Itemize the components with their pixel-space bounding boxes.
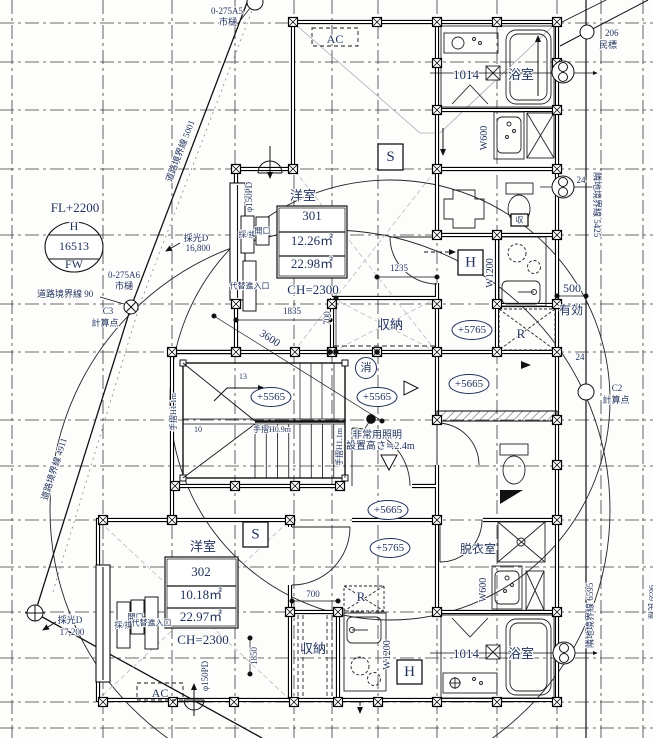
column-marker	[493, 348, 502, 357]
svg-text:収納: 収納	[300, 641, 326, 656]
label-benchmark-206-no: 206	[605, 28, 619, 38]
label-symbol-h-bottom: H	[397, 660, 422, 684]
svg-text:浴室: 浴室	[508, 67, 534, 82]
label-pd-bottom-label: φ150PD	[200, 660, 210, 691]
survey-markers	[25, 0, 597, 664]
column-marker	[493, 698, 502, 707]
svg-text:道路境界線 4911: 道路境界線 4911	[38, 436, 69, 501]
label-room302-name: 洋室	[190, 539, 216, 554]
svg-text:H: H	[465, 255, 476, 271]
column-marker	[232, 300, 241, 309]
column-marker	[433, 231, 442, 240]
label-opening-top-2: 開口	[255, 217, 271, 245]
label-marker-0275a5-name: 市樋	[219, 16, 237, 27]
svg-text:301: 301	[302, 208, 322, 223]
label-benchmark-206-name: 民標	[599, 39, 617, 50]
column-marker	[168, 348, 177, 357]
svg-text:+5765: +5765	[458, 324, 487, 336]
svg-text:洋室: 洋室	[190, 539, 216, 554]
column-marker	[291, 348, 300, 357]
svg-text:代替進入口: 代替進入口	[132, 618, 172, 628]
column-marker	[433, 18, 442, 27]
svg-text:12.26㎡: 12.26㎡	[291, 233, 333, 248]
label-daylight-d2: 採光D	[58, 614, 83, 625]
svg-text:浴室: 浴室	[508, 646, 534, 661]
label-dim-1235: 1235	[390, 263, 409, 273]
drain-marker-3	[553, 642, 575, 664]
svg-text:13: 13	[239, 372, 247, 381]
column-marker	[99, 698, 108, 707]
svg-text:9659 民標: 9659 民標	[647, 585, 653, 619]
label-symbol-s-top: S	[378, 144, 403, 170]
svg-text:17,200: 17,200	[60, 627, 85, 637]
svg-text:22.98㎡: 22.98㎡	[291, 256, 333, 271]
label-marker-0275a5-no: 0-275A5	[211, 6, 243, 16]
column-marker	[433, 165, 442, 174]
svg-text:計算点: 計算点	[602, 394, 629, 405]
label-marker-0275a6-name: 市樋	[115, 280, 133, 291]
column-marker	[231, 482, 240, 491]
svg-text:CH=2300: CH=2300	[287, 282, 338, 297]
label-daylight-d1: 採光D	[184, 232, 209, 243]
label-stair-count-10: 10	[194, 425, 202, 434]
svg-text:10.18㎡: 10.18㎡	[180, 587, 222, 602]
column-marker	[291, 482, 300, 491]
label-dressing-room-label: 脱衣室	[460, 541, 496, 556]
label-benchmark-fl: FL+2200	[51, 200, 100, 215]
svg-text:S: S	[251, 527, 259, 543]
floor-plan-canvas: 0-275A5市樋AC206民標1014浴室W60024隣地境界線 5425S洋…	[0, 0, 653, 738]
column-marker	[433, 106, 442, 115]
label-dim-500-note: 有効	[559, 302, 583, 317]
label-handrail-1: 手摺H1.1m	[168, 392, 178, 431]
column-marker	[553, 516, 562, 525]
drain-marker-2	[552, 176, 574, 198]
svg-text:FL+2200: FL+2200	[51, 200, 100, 215]
svg-text:φ150PD: φ150PD	[244, 181, 254, 212]
daylight-leader-2	[43, 622, 56, 630]
column-marker	[232, 165, 241, 174]
column-marker	[232, 348, 241, 357]
label-calcpoint-c3-name: 計算点	[91, 317, 118, 328]
label-benchmark-value: 16513	[59, 239, 89, 253]
svg-text:W600: W600	[478, 578, 489, 602]
column-marker	[286, 608, 295, 617]
svg-text:非常用照明: 非常用照明	[352, 428, 402, 441]
boundary-corner-2	[562, 0, 606, 22]
svg-text:302: 302	[191, 564, 211, 579]
vent-triangle-down	[381, 455, 397, 470]
label-bath-bottom-unit: 1014	[453, 646, 480, 661]
label-bath-top-name: 浴室	[508, 67, 534, 82]
column-marker	[289, 18, 298, 27]
closet-bottom-rails	[298, 615, 332, 697]
solid-triangle-corner	[500, 490, 523, 504]
column-marker	[553, 231, 562, 240]
label-ac-bottom-label: AC	[152, 686, 169, 700]
label-kitchen-bottom-label: W1200	[382, 640, 393, 669]
label-room301-ceiling: CH=2300	[287, 282, 338, 297]
vanity-top	[494, 112, 524, 159]
label-daylight-d1-value: 16,800	[186, 243, 211, 253]
svg-text:CH=2300: CH=2300	[177, 632, 228, 647]
label-room302-area2: 22.97㎡	[180, 609, 222, 624]
svg-text:0-275A5: 0-275A5	[211, 6, 243, 16]
label-handrail-2: 手摺H0.9m	[253, 424, 292, 434]
column-marker	[171, 482, 180, 491]
label-dim-24-top: 24	[577, 175, 587, 185]
label-daylight-d2-value: 17,200	[60, 627, 85, 637]
column-marker	[289, 165, 298, 174]
svg-text:1835: 1835	[283, 306, 302, 316]
svg-text:22.97㎡: 22.97㎡	[180, 609, 222, 624]
column-marker	[374, 698, 383, 707]
svg-text:C2: C2	[612, 383, 623, 393]
column-marker	[553, 106, 562, 115]
benchmark-206-circle	[580, 25, 594, 39]
label-level-5765-b: +5765	[370, 539, 410, 558]
svg-text:+5665: +5665	[374, 504, 403, 516]
label-fridge-top-label: R	[517, 326, 526, 341]
svg-text:道路境界線 90: 道路境界線 90	[37, 288, 94, 299]
label-room301-number: 301	[302, 208, 322, 223]
svg-text:採光D: 採光D	[58, 614, 83, 625]
label-storage-top-label: 収納	[377, 317, 403, 332]
label-benchmark-fw: FW	[65, 257, 84, 271]
column-marker	[433, 348, 442, 357]
washer-space-top	[527, 113, 554, 158]
svg-text:24: 24	[577, 175, 587, 185]
svg-text:隣地境界線 5425: 隣地境界線 5425	[592, 172, 603, 238]
label-bath-top-unit: 1014	[453, 67, 480, 82]
column-marker	[553, 608, 562, 617]
svg-text:16,800: 16,800	[186, 243, 211, 253]
label-dim-500: 500	[563, 281, 581, 295]
label-boundary-road-5001: 道路境界線 5001	[163, 118, 197, 183]
svg-text:収: 収	[516, 215, 524, 225]
window-room302	[96, 565, 110, 682]
label-dim-3600: 3600	[257, 327, 282, 349]
svg-text:W600: W600	[479, 126, 490, 150]
svg-text:採光D: 採光D	[184, 232, 209, 243]
svg-text:R: R	[517, 326, 526, 341]
column-marker	[493, 300, 502, 309]
label-dim-24-mid: 24	[576, 352, 586, 362]
svg-text:φ150PD: φ150PD	[200, 660, 210, 691]
svg-text:洋室: 洋室	[290, 188, 316, 203]
column-marker	[553, 416, 562, 425]
label-stair-count-13: 13	[239, 372, 247, 381]
svg-text:W1200: W1200	[382, 640, 393, 669]
svg-text:700: 700	[306, 589, 320, 599]
label-boundary-road-90: 道路境界線 90	[37, 288, 94, 299]
label-calcpoint-c2: C2	[612, 383, 623, 393]
survey-cross-marker	[25, 605, 45, 621]
svg-text:W1200: W1200	[485, 258, 496, 287]
svg-text:1014: 1014	[453, 646, 480, 661]
svg-text:C3: C3	[103, 306, 114, 316]
door-room302	[292, 527, 350, 585]
label-emergency-light-2: 設置高さ≒2.4m	[346, 439, 415, 452]
svg-text:設置高さ≒2.4m: 設置高さ≒2.4m	[346, 439, 415, 452]
svg-text:+5665: +5665	[455, 378, 484, 390]
svg-text:24: 24	[576, 352, 586, 362]
svg-text:16513: 16513	[59, 239, 89, 253]
svg-text:700: 700	[322, 311, 332, 325]
svg-text:有効: 有効	[559, 302, 583, 317]
svg-text:民標: 民標	[599, 39, 617, 50]
svg-text:206: 206	[605, 28, 619, 38]
label-dim-700-top: 700	[322, 311, 332, 325]
column-marker	[433, 608, 442, 617]
svg-text:隣地境界線 6595: 隣地境界線 6595	[584, 582, 595, 648]
label-symbol-h-right: H	[458, 250, 483, 275]
staircase	[180, 360, 348, 481]
column-marker	[99, 516, 108, 525]
column-marker	[290, 698, 299, 707]
label-fridge-bottom-label: R	[357, 589, 366, 604]
calcpoint-c2-circle	[578, 384, 594, 400]
svg-text:手摺H1.1m: 手摺H1.1m	[168, 392, 178, 431]
label-pd-top-label: φ150PD	[244, 181, 254, 212]
label-level-5565-b: +5565	[357, 388, 397, 407]
label-opening-bottom-1: 採/換	[114, 602, 132, 648]
stove-burner-icon	[351, 657, 369, 675]
column-marker	[373, 18, 382, 27]
label-dim-1850: 1850	[249, 647, 259, 666]
column-marker	[433, 698, 442, 707]
label-boundary-road-4911: 道路境界線 4911	[38, 436, 69, 501]
svg-text:+5565: +5565	[257, 391, 286, 403]
svg-text:手摺H0.9m: 手摺H0.9m	[253, 424, 292, 434]
label-ac-top-label: AC	[327, 32, 344, 46]
label-benchmark-9659: 9659 民標	[647, 585, 653, 619]
label-room302-area1: 10.18㎡	[180, 587, 222, 602]
label-dim-700-bottom: 700	[306, 589, 320, 599]
label-kitchen-top-label: W1200	[485, 258, 496, 287]
column-marker	[433, 300, 442, 309]
label-calcpoint-c2-name: 計算点	[602, 394, 629, 405]
vanity-bottom	[492, 566, 522, 609]
column-marker	[169, 698, 178, 707]
label-boundary-east-2: 隣地境界線 6595	[584, 582, 595, 648]
svg-text:1850: 1850	[249, 647, 259, 666]
door-toilet-mid	[437, 423, 479, 465]
folding-door-icon	[452, 618, 488, 637]
svg-text:FW: FW	[65, 257, 84, 271]
fixtures	[298, 26, 555, 698]
washer-pan-bottom	[498, 522, 545, 562]
column-marker	[433, 416, 442, 425]
svg-text:計算点: 計算点	[91, 317, 118, 328]
column-marker	[493, 18, 502, 27]
svg-text:AC: AC	[327, 32, 344, 46]
label-room302-number: 302	[191, 564, 211, 579]
svg-text:脱衣室: 脱衣室	[460, 541, 496, 556]
label-handrail-3: 手摺H1.1m	[334, 427, 344, 466]
svg-text:0-275A6: 0-275A6	[108, 270, 140, 280]
column-marker	[328, 300, 337, 309]
column-marker	[553, 698, 562, 707]
svg-text:10: 10	[194, 425, 202, 434]
utility-sink-top	[444, 190, 484, 228]
folding-door-icon	[452, 85, 488, 104]
vent-triangle-right	[404, 381, 418, 395]
kitchen-sink-icon	[502, 281, 540, 304]
label-level-5765-a: +5765	[452, 321, 492, 340]
svg-text:+5765: +5765	[376, 542, 405, 554]
svg-text:500: 500	[563, 281, 581, 295]
label-symbol-extinguisher: 消	[356, 358, 377, 379]
column-marker	[334, 698, 343, 707]
hatched-wall	[437, 411, 557, 421]
label-boundary-east-1: 隣地境界線 5425	[592, 172, 603, 238]
kitchen-top	[499, 237, 546, 306]
column-marker	[553, 348, 562, 357]
svg-text:S: S	[386, 149, 394, 165]
svg-text:AC: AC	[152, 686, 169, 700]
kitchen-bottom	[344, 613, 386, 691]
svg-text:代替進入口: 代替進入口	[230, 281, 270, 291]
column-marker	[336, 482, 345, 491]
floor-plan-svg: 0-275A5市樋AC206民標1014浴室W60024隣地境界線 5425S洋…	[0, 0, 653, 738]
daylight-leader-1	[166, 243, 180, 251]
label-bath-bottom-name: 浴室	[508, 646, 534, 661]
column-marker	[168, 516, 177, 525]
label-dim-1835: 1835	[283, 306, 302, 316]
toilet-mid	[500, 444, 528, 484]
svg-text:R: R	[357, 589, 366, 604]
fridge-space-top	[499, 309, 555, 350]
svg-text:H: H	[70, 219, 79, 233]
column-marker	[553, 18, 562, 27]
label-vanity-top-label: W600	[479, 126, 490, 150]
svg-text:開口: 開口	[255, 227, 271, 236]
label-room302-ceiling: CH=2300	[177, 632, 228, 647]
washer-space-bottom	[526, 571, 544, 610]
svg-text:H: H	[404, 664, 415, 680]
svg-text:市樋: 市樋	[219, 16, 237, 27]
column-marker	[334, 608, 343, 617]
label-symbol-s-bottom: S	[243, 522, 268, 547]
label-room301-area2: 22.98㎡	[291, 256, 333, 271]
svg-text:+5565: +5565	[363, 391, 392, 403]
label-room301-area1: 12.26㎡	[291, 233, 333, 248]
column-marker	[553, 165, 562, 174]
label-level-5565-a: +5565	[251, 388, 291, 407]
label-storage-bottom-label: 収納	[300, 641, 326, 656]
label-emergency-light-1: 非常用照明	[352, 428, 402, 441]
column-marker	[553, 461, 562, 470]
svg-text:収納: 収納	[377, 317, 403, 332]
svg-text:3600: 3600	[257, 327, 282, 349]
stove-burner-icon	[508, 244, 526, 262]
column-marker	[433, 59, 442, 68]
label-shelf-top-label: 収	[511, 214, 528, 226]
label-room301-name: 洋室	[290, 188, 316, 203]
column-marker	[433, 516, 442, 525]
label-level-5665-b: +5665	[368, 501, 408, 520]
column-marker	[230, 698, 239, 707]
svg-text:手摺H1.1m: 手摺H1.1m	[334, 427, 344, 466]
label-benchmark-h: H	[70, 219, 79, 233]
column-marker	[286, 516, 295, 525]
label-marker-0275a6-no: 0-275A6	[108, 270, 140, 280]
washbasin-icon	[452, 37, 464, 49]
label-calcpoint-c3: C3	[103, 306, 114, 316]
svg-text:1014: 1014	[453, 67, 480, 82]
solid-triangle-small	[521, 361, 531, 369]
label-level-5665-a: +5665	[449, 375, 489, 394]
svg-text:道路境界線 5001: 道路境界線 5001	[163, 118, 197, 183]
svg-text:市樋: 市樋	[115, 280, 133, 291]
column-marker	[493, 231, 502, 240]
svg-text:1235: 1235	[390, 263, 409, 273]
svg-text:消: 消	[361, 360, 372, 374]
label-vanity-bottom-label: W600	[478, 578, 489, 602]
drain-marker-1	[552, 61, 574, 83]
